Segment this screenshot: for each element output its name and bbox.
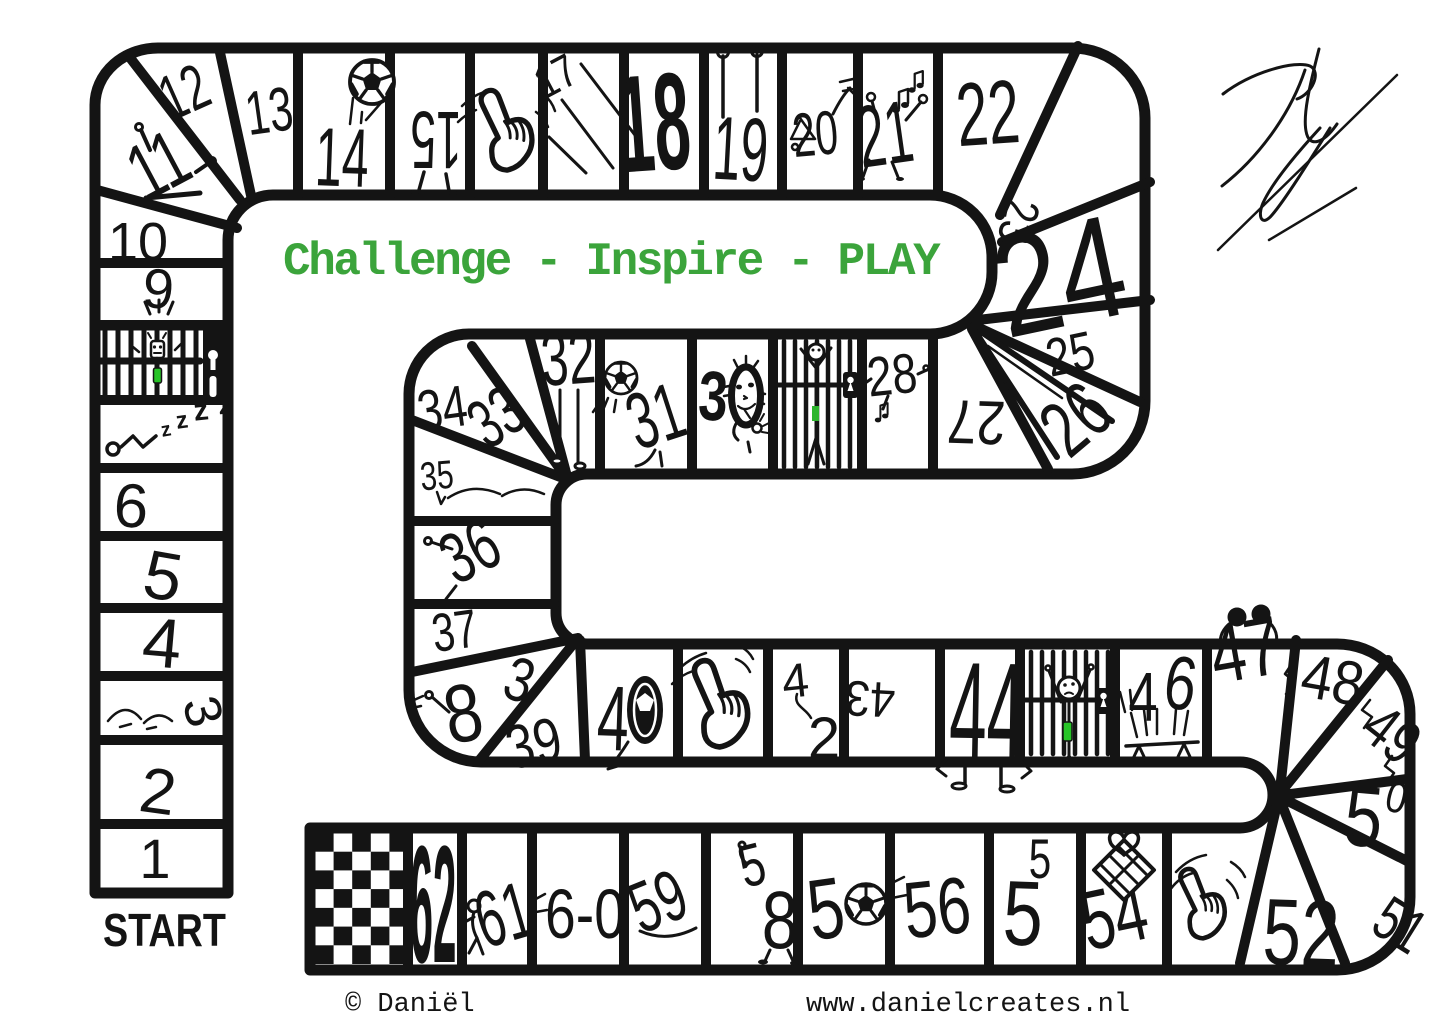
svg-text:15: 15: [410, 93, 461, 184]
svg-text:34: 34: [413, 372, 471, 443]
svg-text:37: 37: [428, 599, 481, 665]
svg-text:19: 19: [710, 98, 770, 201]
svg-text:2: 2: [808, 706, 840, 771]
svg-text:2: 2: [135, 753, 180, 829]
svg-text:5: 5: [802, 859, 851, 959]
svg-text:5: 5: [1029, 829, 1051, 891]
svg-text:27: 27: [946, 386, 1007, 457]
svg-text:Challenge - Inspire - PLAY: Challenge - Inspire - PLAY: [283, 236, 941, 288]
svg-text:z: z: [159, 418, 173, 441]
svg-text:56: 56: [899, 860, 975, 956]
svg-text:22: 22: [953, 61, 1023, 166]
svg-text:6: 6: [112, 471, 150, 542]
svg-text:62: 62: [410, 811, 457, 998]
svg-text:48: 48: [1296, 642, 1369, 720]
svg-text:START: START: [103, 904, 226, 955]
svg-text:4: 4: [139, 603, 185, 684]
svg-text:4: 4: [595, 668, 630, 771]
svg-text:20: 20: [789, 98, 840, 171]
svg-text:28: 28: [864, 341, 920, 409]
svg-text:6-0: 6-0: [545, 876, 625, 954]
svg-text:52: 52: [1261, 880, 1341, 987]
svg-text:8: 8: [762, 874, 798, 966]
svg-text:49: 49: [1350, 691, 1435, 778]
svg-text:39: 39: [499, 703, 567, 783]
svg-text:43: 43: [844, 669, 897, 727]
svg-text:14: 14: [314, 112, 371, 206]
svg-text:www.danielcreates.nl: www.danielcreates.nl: [806, 990, 1130, 1020]
svg-text:z: z: [174, 406, 190, 434]
svg-text:32: 32: [538, 313, 598, 402]
svg-text:z: z: [218, 393, 232, 421]
svg-text:44: 44: [948, 634, 1025, 791]
svg-text:6: 6: [1159, 640, 1202, 728]
svg-text:1: 1: [139, 827, 170, 890]
svg-text:13: 13: [241, 74, 297, 149]
